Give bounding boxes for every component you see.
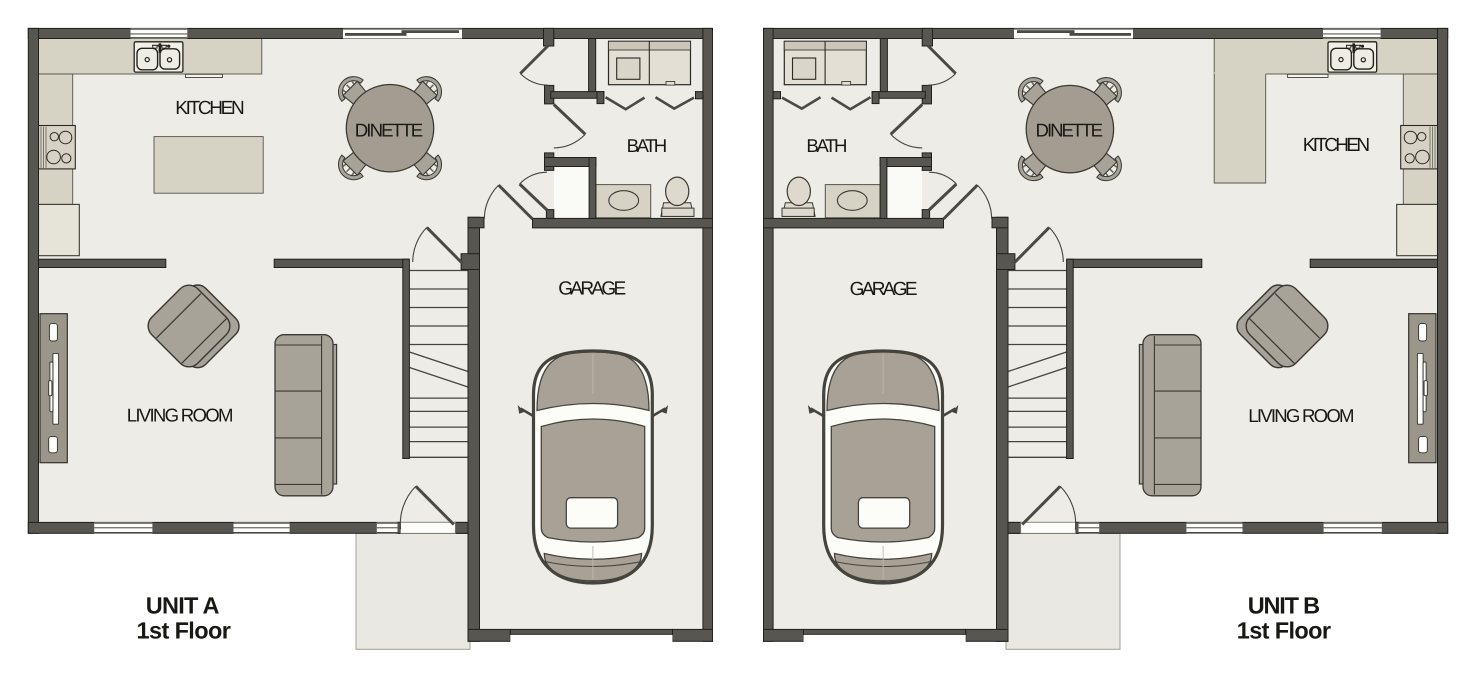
svg-text:UNIT A: UNIT A [146, 593, 220, 619]
svg-text:GARAGE: GARAGE [558, 279, 626, 300]
svg-text:DINETTE: DINETTE [355, 119, 423, 140]
svg-text:GARAGE: GARAGE [850, 279, 918, 300]
svg-text:1st Floor: 1st Floor [137, 618, 231, 644]
svg-text:BATH: BATH [806, 135, 847, 156]
svg-text:1st Floor: 1st Floor [1237, 618, 1331, 644]
svg-text:KITCHEN: KITCHEN [175, 98, 245, 119]
svg-text:LIVING ROOM: LIVING ROOM [127, 404, 234, 425]
svg-text:BATH: BATH [627, 135, 668, 156]
svg-text:UNIT B: UNIT B [1248, 593, 1320, 619]
svg-text:LIVING ROOM: LIVING ROOM [1248, 405, 1354, 426]
svg-text:DINETTE: DINETTE [1036, 120, 1104, 141]
svg-text:KITCHEN: KITCHEN [1303, 135, 1370, 156]
